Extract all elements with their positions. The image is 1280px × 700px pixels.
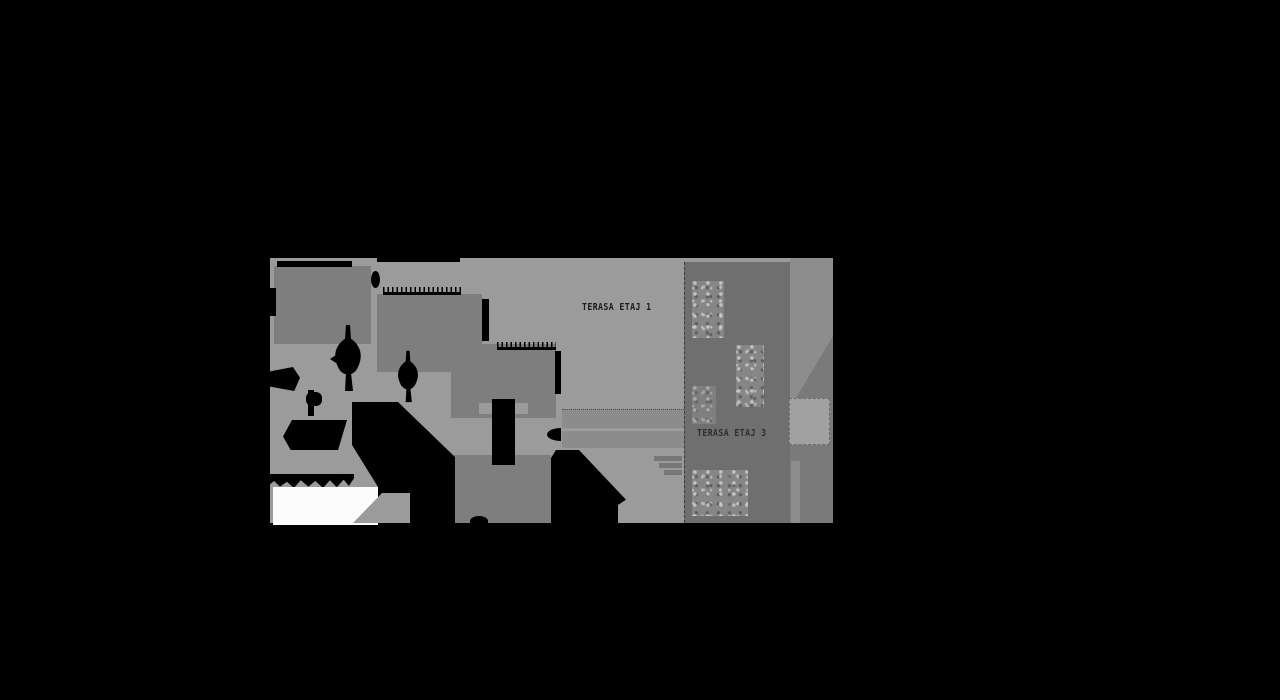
stair-landing-tab (481, 443, 492, 453)
walkway-band-upper (562, 409, 684, 428)
parapet-bar-top-edge (377, 258, 460, 262)
planter-foliage (692, 386, 716, 424)
railing-bar-center (555, 351, 561, 394)
shrub-blob (371, 271, 380, 288)
terrace-1-label: TERASA ETAJ 1 (582, 302, 652, 313)
small-tree-crown (306, 392, 322, 406)
stair-landing-tab (479, 403, 492, 414)
roof-block-lower-center (452, 455, 551, 523)
right-column-walk-strip (791, 461, 800, 523)
skylight-panel (789, 398, 830, 445)
planter-foliage (692, 281, 724, 338)
step-tread (659, 463, 682, 468)
terrace-3-label: TERASA ETAJ 3 (697, 428, 767, 439)
pergola-hatch-center (497, 342, 556, 350)
tree-icon (394, 350, 422, 406)
planter-foliage (692, 470, 748, 516)
tree-icon (330, 325, 366, 395)
parapet-bar-left-edge (270, 288, 276, 316)
stair-core (492, 399, 515, 465)
walkway-band-lower (562, 430, 684, 448)
hedge-band (283, 420, 347, 450)
stair-landing-tab (515, 403, 528, 414)
railing-bar-mid (482, 299, 489, 341)
pergola-hatch-mid (383, 287, 461, 295)
roof-vent-icon (470, 516, 488, 526)
roof-plan-canvas: TERASA ETAJ 1 TERASA ETAJ 3 (0, 0, 1280, 700)
parapet-bar-upper-left (277, 261, 352, 267)
stair-landing-tab (516, 443, 527, 453)
planter-foliage (736, 345, 764, 407)
step-tread (654, 456, 682, 461)
step-tread (664, 470, 682, 475)
